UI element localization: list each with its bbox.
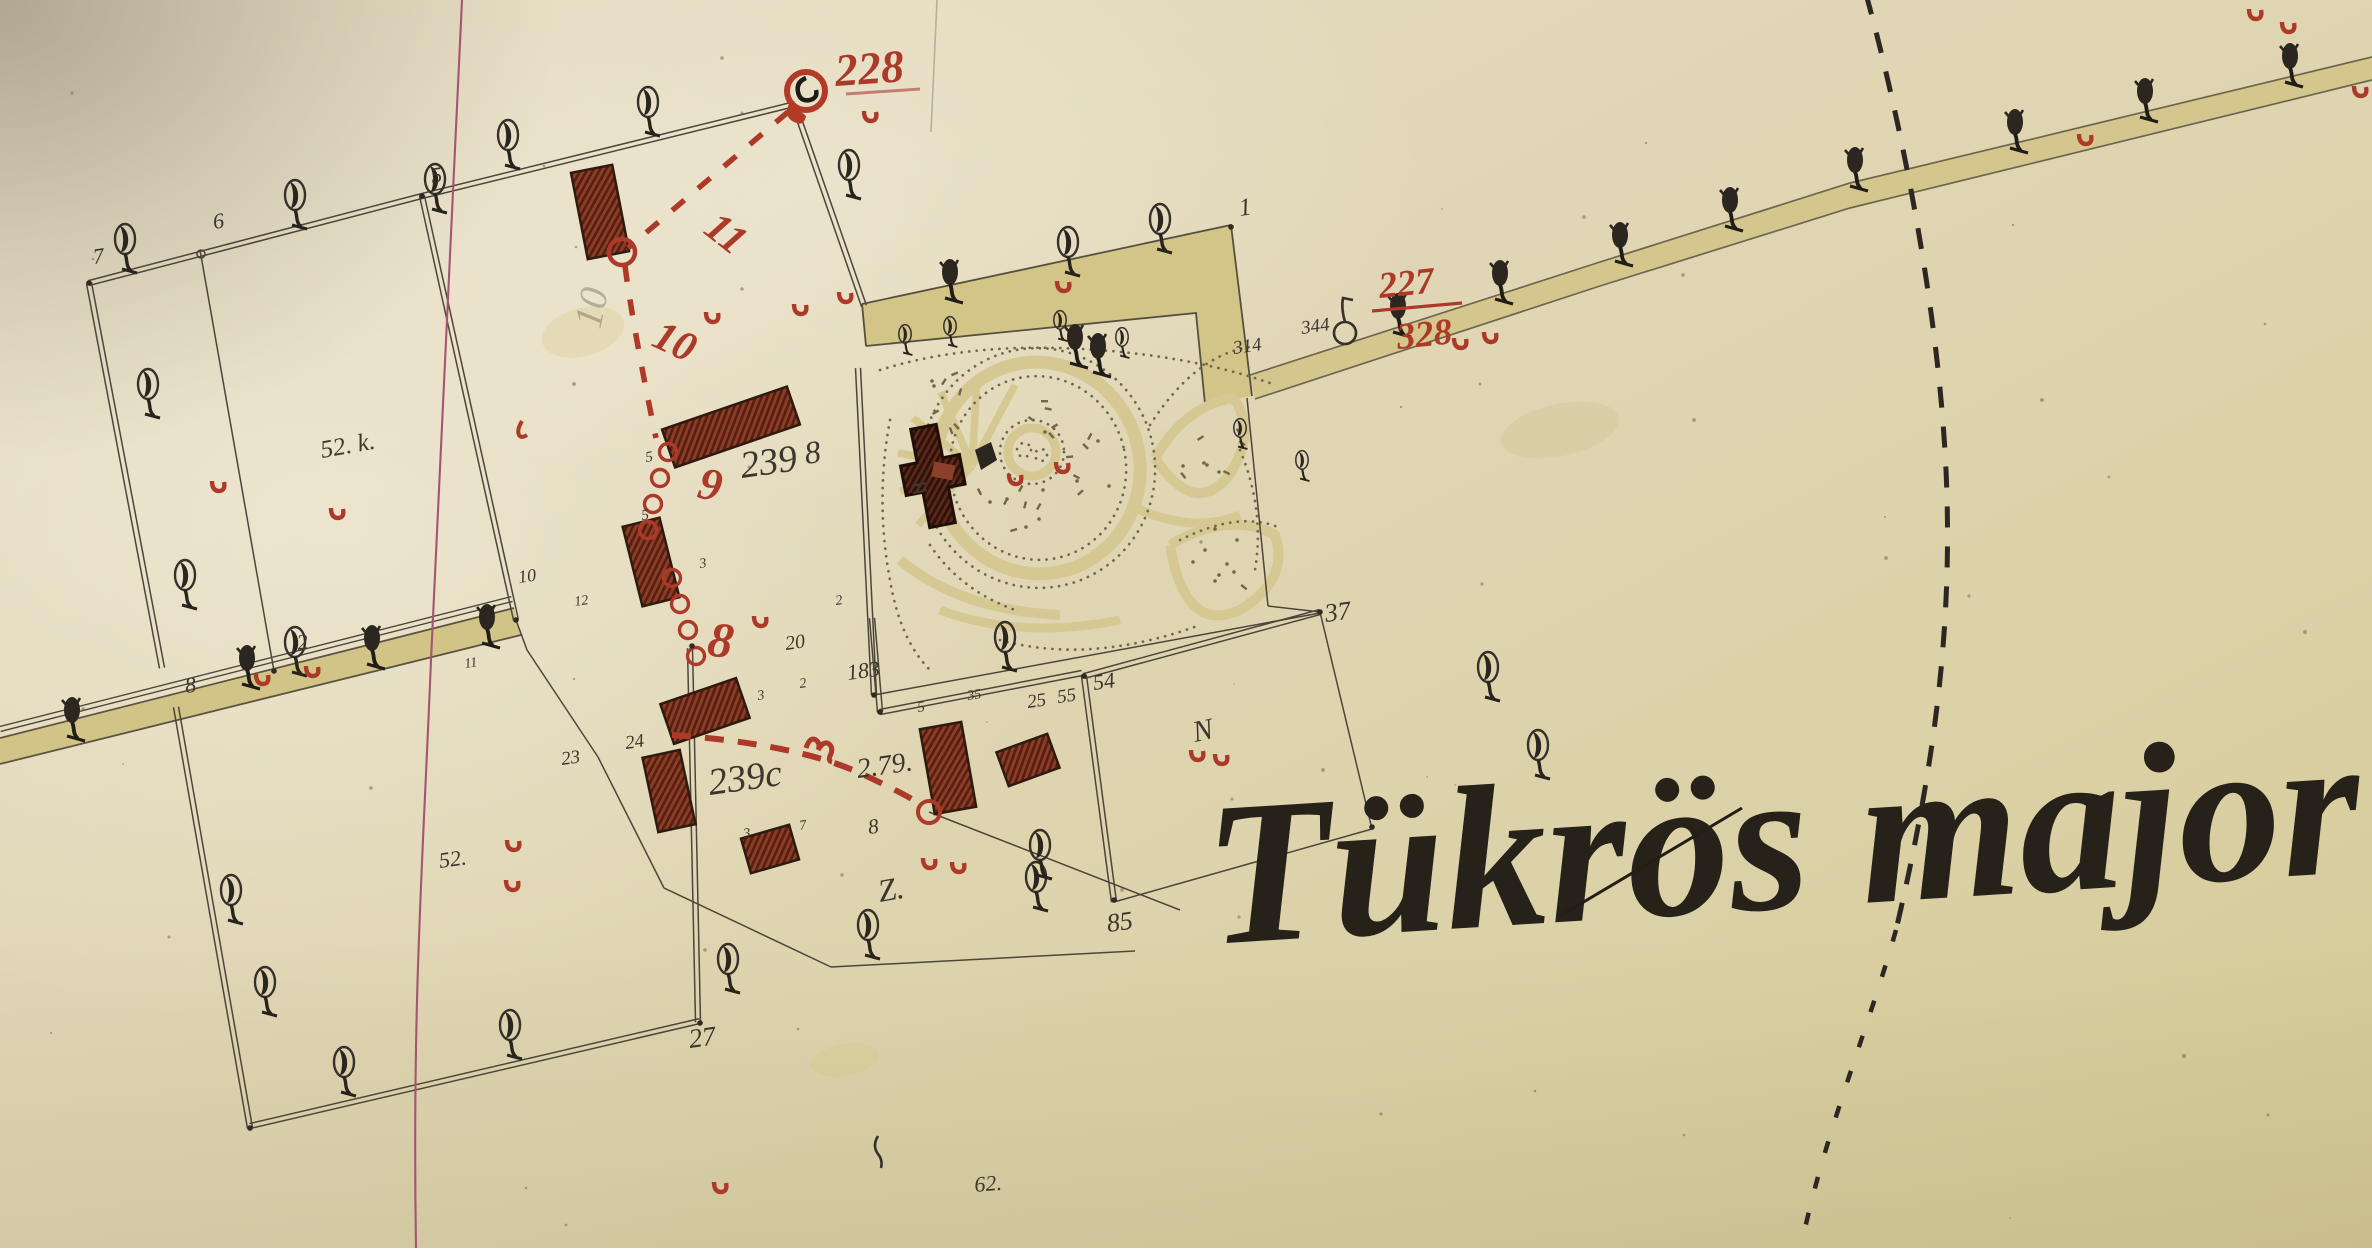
svg-text:12: 12 <box>573 593 589 610</box>
svg-text:10: 10 <box>517 565 538 587</box>
svg-text:62.: 62. <box>973 1170 1003 1197</box>
svg-text:35: 35 <box>965 687 982 704</box>
svg-text:228: 228 <box>832 40 905 96</box>
svg-text:23: 23 <box>560 747 582 770</box>
svg-text:328: 328 <box>1394 311 1454 358</box>
svg-text:227: 227 <box>1376 260 1438 307</box>
svg-text:52.: 52. <box>437 844 468 873</box>
svg-text:37: 37 <box>1322 595 1354 628</box>
svg-text:344: 344 <box>1299 314 1332 339</box>
svg-text:24: 24 <box>624 730 646 754</box>
svg-text:314: 314 <box>1231 334 1264 359</box>
svg-text:54: 54 <box>1091 667 1116 695</box>
svg-text:25: 25 <box>1026 690 1048 713</box>
svg-text:85: 85 <box>1105 906 1135 938</box>
svg-text:11: 11 <box>463 655 478 672</box>
svg-text:55: 55 <box>1056 685 1078 708</box>
svg-text:239: 239 <box>737 437 799 487</box>
svg-text:183: 183 <box>845 656 881 685</box>
svg-text:20: 20 <box>784 630 807 655</box>
